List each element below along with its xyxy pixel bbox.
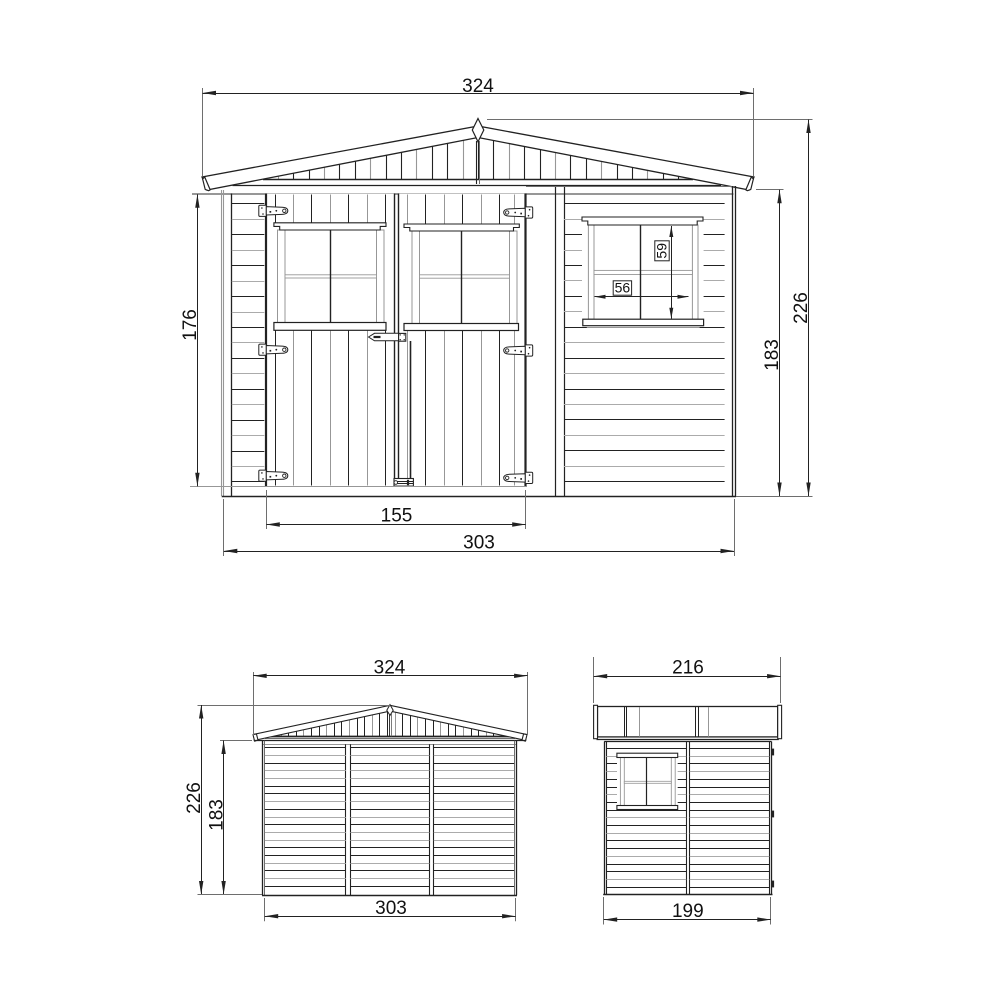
svg-text:155: 155 (381, 506, 413, 527)
svg-text:183: 183 (206, 799, 227, 831)
svg-text:303: 303 (375, 898, 407, 919)
svg-text:324: 324 (374, 658, 406, 679)
svg-text:176: 176 (180, 309, 201, 341)
svg-text:59: 59 (654, 243, 670, 259)
svg-text:199: 199 (672, 901, 704, 922)
svg-text:226: 226 (791, 292, 812, 324)
svg-text:216: 216 (672, 658, 704, 679)
svg-text:303: 303 (463, 533, 495, 554)
svg-text:324: 324 (462, 76, 494, 97)
svg-text:226: 226 (184, 782, 205, 814)
svg-text:183: 183 (762, 339, 783, 371)
svg-text:56: 56 (615, 280, 631, 296)
